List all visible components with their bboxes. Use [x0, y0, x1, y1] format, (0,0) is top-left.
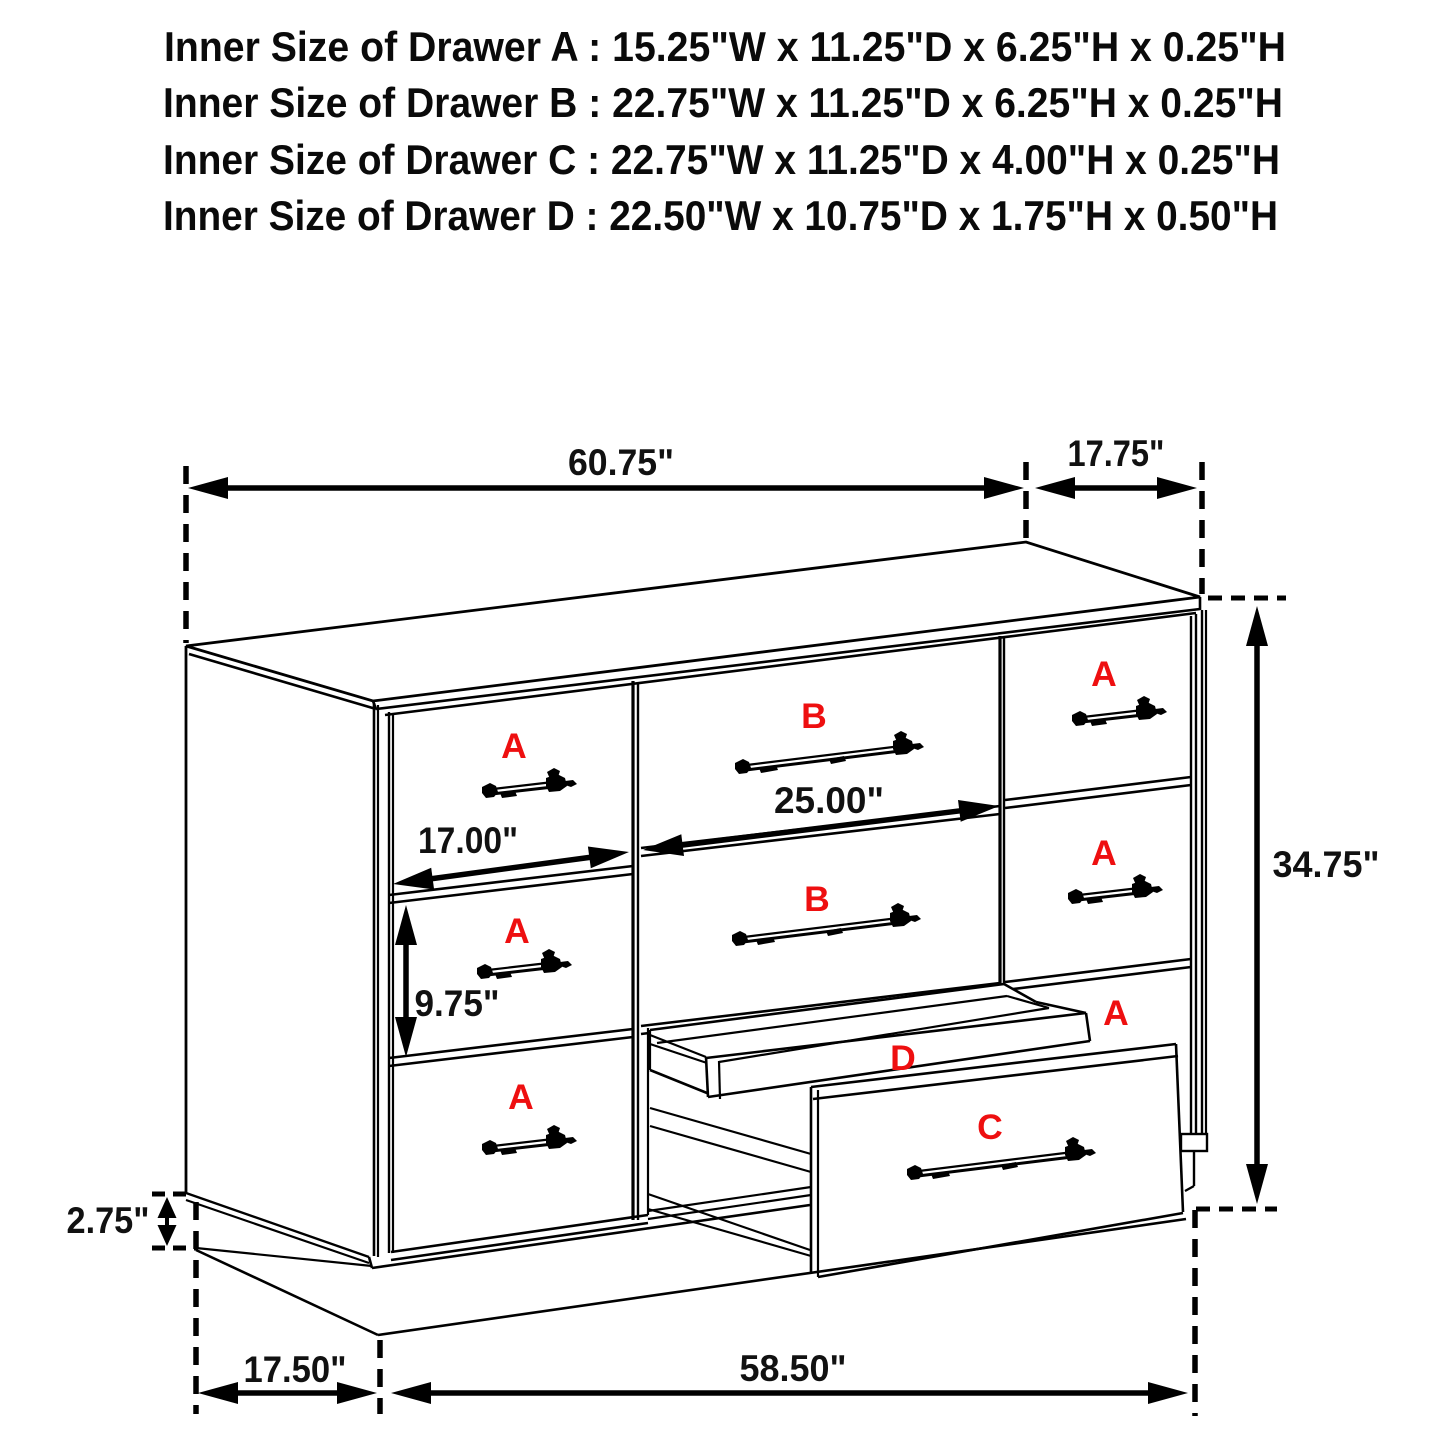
- svg-text:A: A: [1091, 833, 1117, 873]
- svg-text:B: B: [801, 696, 827, 736]
- svg-text:A: A: [1091, 654, 1117, 694]
- svg-text:A: A: [508, 1077, 534, 1117]
- svg-text:17.00": 17.00": [418, 820, 518, 861]
- svg-text:Inner Size of Drawer B : 22.75: Inner Size of Drawer B : 22.75"W x 11.25…: [163, 79, 1283, 126]
- svg-text:9.75": 9.75": [415, 983, 500, 1024]
- svg-text:34.75": 34.75": [1273, 844, 1380, 885]
- svg-text:A: A: [1103, 993, 1129, 1033]
- svg-text:Inner Size of Drawer C : 22.75: Inner Size of Drawer C : 22.75"W x 11.25…: [163, 136, 1280, 183]
- svg-text:2.75": 2.75": [67, 1200, 150, 1241]
- svg-text:Inner Size of Drawer D : 22.5: Inner Size of Drawer D : 22.50"W x 10.75…: [163, 192, 1278, 239]
- svg-text:17.50": 17.50": [244, 1349, 347, 1390]
- svg-text:58.50": 58.50": [740, 1348, 847, 1389]
- svg-text:A: A: [501, 726, 527, 766]
- svg-text:D: D: [890, 1038, 916, 1078]
- svg-text:17.75": 17.75": [1068, 433, 1165, 474]
- svg-text:25.00": 25.00": [774, 780, 884, 821]
- svg-text:60.75": 60.75": [568, 442, 674, 483]
- svg-text:C: C: [977, 1107, 1003, 1147]
- svg-text:B: B: [804, 879, 830, 919]
- svg-text:Inner Size of Drawer A : 15.25: Inner Size of Drawer A : 15.25"W x 11.25…: [164, 23, 1286, 70]
- svg-text:A: A: [504, 911, 530, 951]
